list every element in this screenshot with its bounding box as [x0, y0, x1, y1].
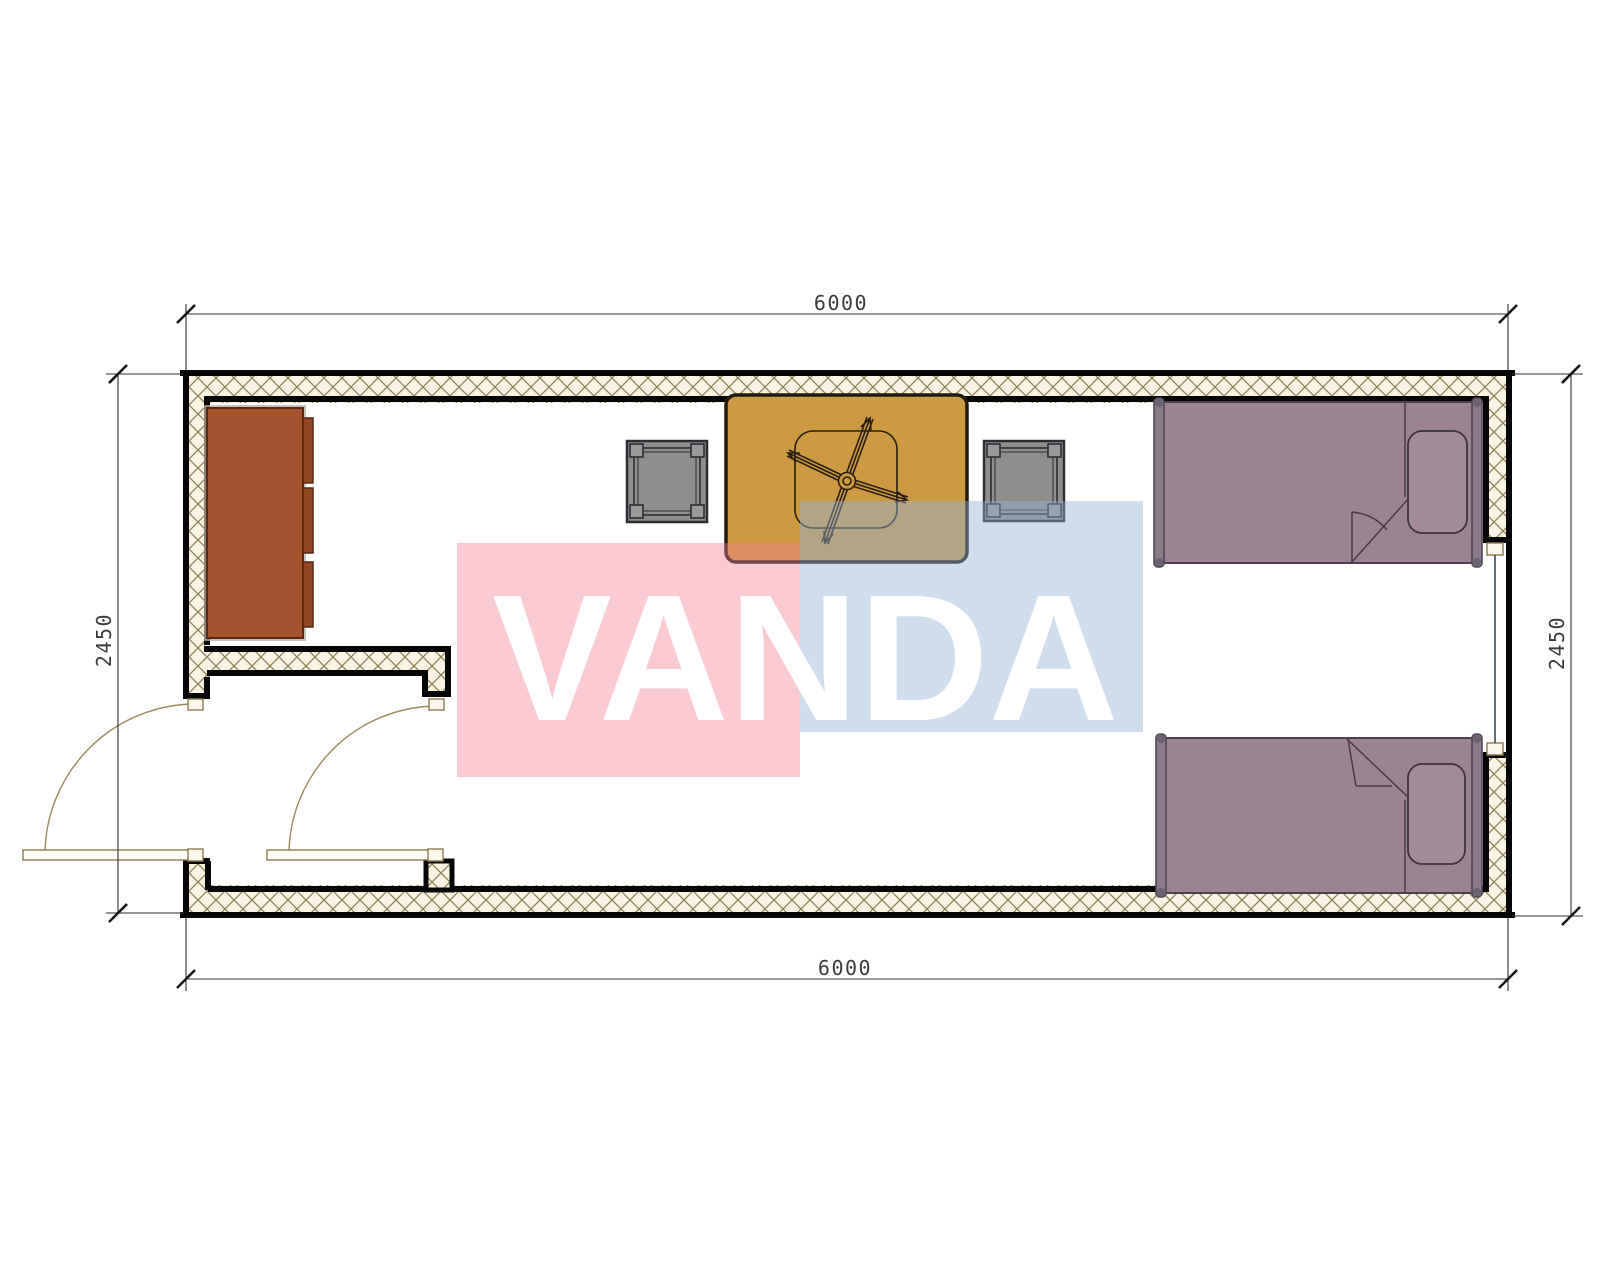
dimension-label-right: 2450 [1545, 593, 1569, 693]
dimension-label-bottom: 6000 [795, 956, 895, 980]
single-bed-bottom [1156, 734, 1482, 897]
dimension-label-left: 2450 [92, 590, 116, 690]
pillow [1408, 764, 1465, 864]
stool-left [627, 441, 707, 522]
watermark-text: VANDA [492, 569, 1119, 749]
door-left-exterior [23, 699, 203, 861]
door-interior [267, 699, 444, 861]
window-right [1487, 543, 1503, 755]
wardrobe-cabinet [205, 406, 313, 640]
dimension-label-top: 6000 [791, 291, 891, 315]
floor-plan-canvas: 6000 6000 2450 2450 VANDA [0, 0, 1600, 1280]
door-jamb-stub [426, 861, 452, 890]
door-frame-block [188, 699, 203, 710]
door-frame-block [188, 849, 203, 861]
door-frame-block [428, 849, 443, 861]
door-frame-block [429, 699, 444, 710]
pillow [1408, 431, 1467, 533]
single-bed-top [1154, 398, 1482, 567]
